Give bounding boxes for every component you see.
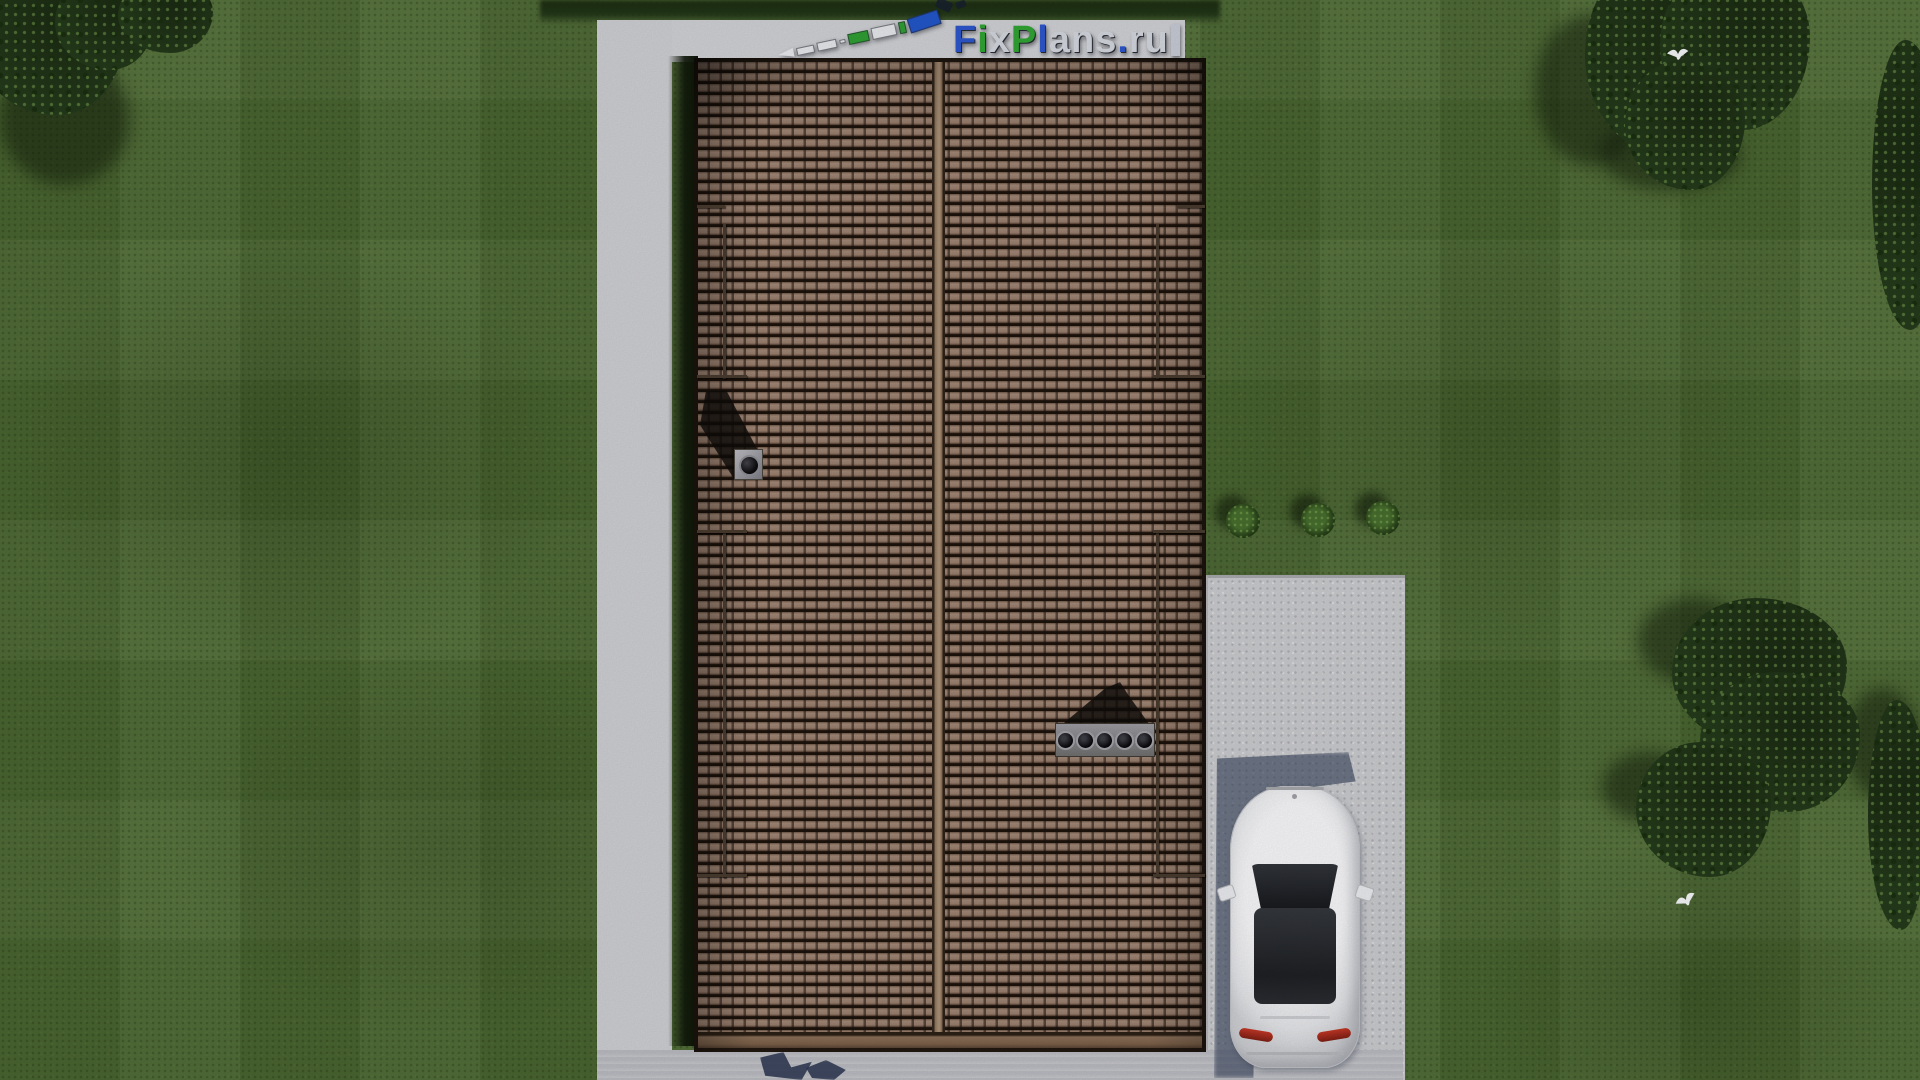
roof-rail: [1156, 532, 1159, 878]
roof-rail: [697, 530, 747, 533]
vent-pipe: [1115, 731, 1134, 750]
foliage-blob: [1636, 742, 1771, 877]
roof-vent-array: [1055, 723, 1155, 757]
vent-pipe: [1095, 731, 1114, 750]
roof-rail: [697, 375, 747, 378]
roof-rail: [723, 532, 726, 878]
aerial-house-render: FixPlans.ru: [0, 0, 1920, 1080]
logo-run: ans: [1049, 19, 1117, 61]
vent-pipe: [1056, 731, 1075, 750]
flying-bird: [1665, 42, 1692, 65]
logo-end-block: [1171, 24, 1180, 56]
car-taillight-right: [1316, 1027, 1351, 1042]
car-roof-glass: [1254, 908, 1336, 1004]
roof-rail: [1156, 224, 1159, 379]
chimney: [734, 449, 763, 480]
roof-rail: [1177, 205, 1205, 208]
chimney-pipe: [739, 455, 760, 476]
car-bumper-line: [1246, 1052, 1344, 1055]
bush: [1366, 501, 1400, 535]
logo-run: x: [989, 19, 1011, 61]
watermark-logo: FixPlans.ru: [953, 18, 1180, 64]
car-trunk-line: [1260, 1016, 1330, 1019]
foliage-blob: [1625, 60, 1745, 190]
car-windshield: [1248, 864, 1342, 910]
roof-rail: [1153, 874, 1205, 877]
roof-shading: [694, 58, 1206, 1052]
logo-run: .: [1117, 19, 1129, 61]
logo-run: P: [1011, 19, 1037, 61]
logo-run: i: [977, 19, 989, 61]
roof-rail: [697, 205, 725, 208]
bush: [1301, 503, 1335, 537]
roof-rail: [1153, 375, 1205, 378]
logo-run: l: [1037, 19, 1049, 61]
vent-pipe: [1135, 731, 1154, 750]
concrete-path-left: [597, 20, 672, 1080]
vent-pipe: [1076, 731, 1095, 750]
parked-car: [1230, 786, 1360, 1068]
logo-run: ru: [1129, 19, 1169, 61]
logo-run: F: [953, 19, 977, 61]
car-front-grille: [1266, 787, 1324, 790]
roof-rail: [1153, 530, 1205, 533]
car-hood-badge: [1292, 794, 1297, 799]
ruler-segment: [839, 39, 846, 44]
roof-rail: [697, 874, 747, 877]
ruler-segment: [898, 21, 907, 34]
bush: [1226, 504, 1260, 538]
roof-rail: [723, 224, 726, 379]
car-taillight-left: [1238, 1027, 1273, 1042]
